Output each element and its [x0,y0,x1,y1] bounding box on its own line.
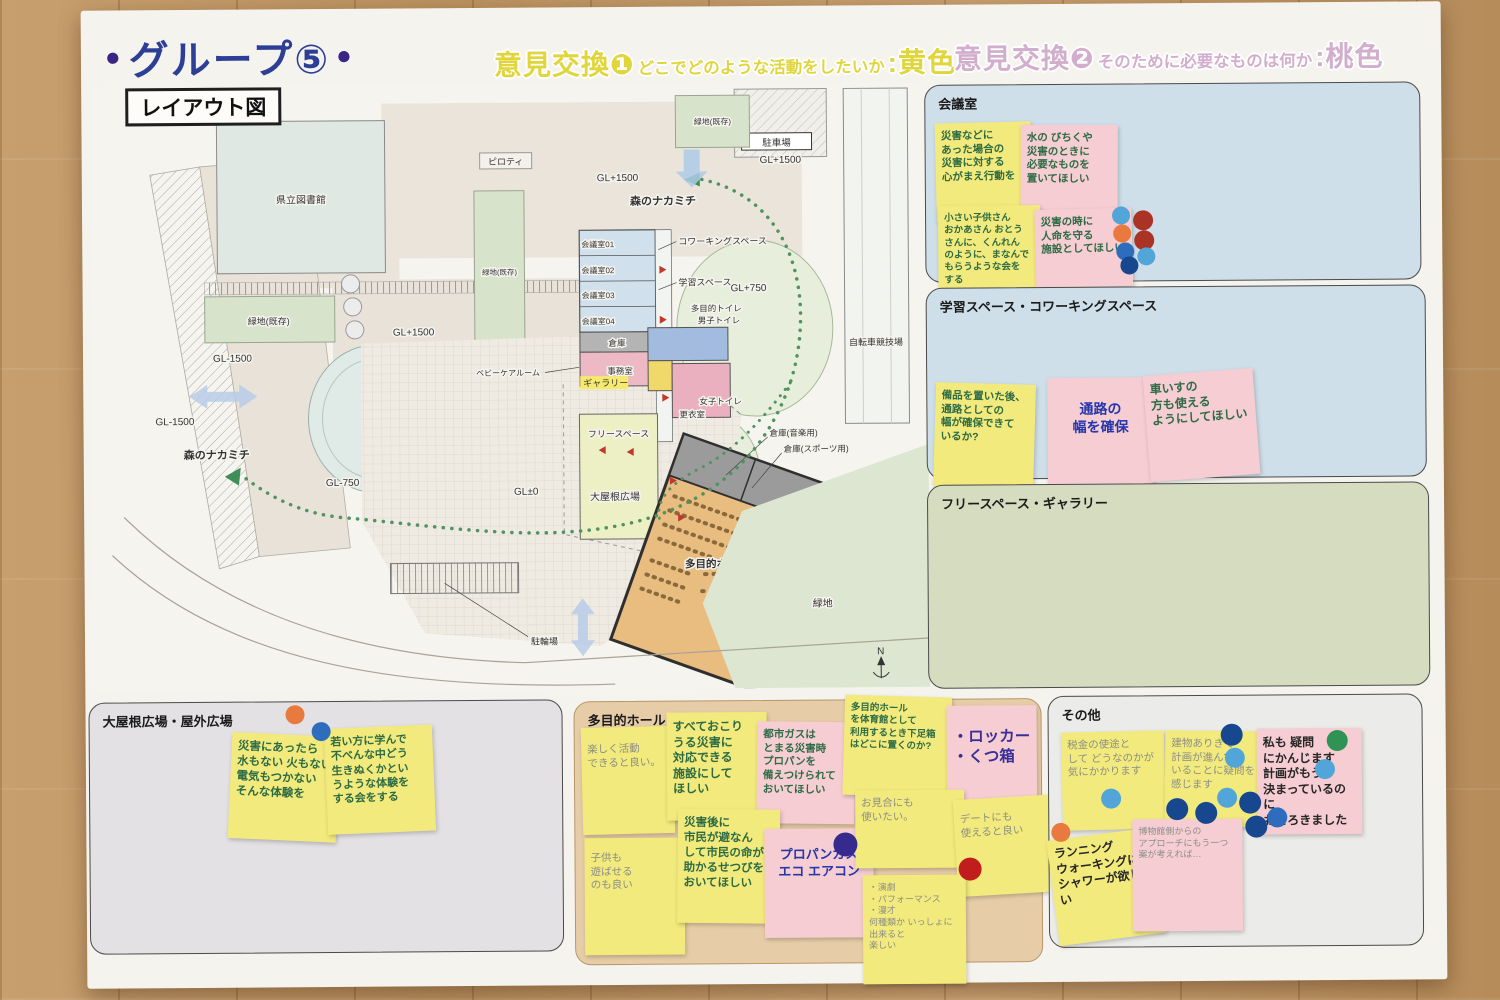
panel-kaigishitsu: 会議室 災害などに あった場合の 災害に対する 心がまえ行動を 水の びちくや … [924,81,1421,282]
room-divider [579,255,655,256]
note-tamokuteki-9: デートにも 使えると良い [953,795,1056,898]
gl-label: GL+1500 [393,327,435,338]
meeting1-label: 会議室01 [581,239,615,249]
gl-label: GL-1500 [213,354,252,365]
dot-sticker [1315,759,1335,779]
green-existing-label: 緑地(既存) [248,315,290,326]
panel-oyane-label: 大屋根広場・屋外広場 [102,711,232,731]
free-space-label: フリースペース [588,429,650,439]
gl-label: GL±0 [514,487,539,498]
dot-sticker [1113,224,1131,242]
note-sonota-0: 税金の使途と して どうなのかが 気にかかります [1061,730,1166,830]
dot-sticker [959,857,982,880]
dot-sticker [1245,815,1267,837]
multi-toilet-label: 多目的トイレ [691,303,742,313]
dot-sticker [1120,256,1138,274]
exchange-1-color: :黄色 [888,41,957,81]
forest-path-label: 森のナカミチ [184,448,250,462]
panel-gakushu-label: 学習スペース・コワーキングスペース [940,295,1158,316]
forest-path-label: 森のナカミチ [630,193,696,207]
storage-music-label: 倉庫(音楽用) [770,428,818,438]
yellow-room [648,361,672,391]
note-tamokuteki-5: 子供も 遊ばせる のも良い [584,838,685,956]
piloti-label: ピロティ [488,157,524,167]
note-gakushu-1: 通路の 幅を確保 [1047,377,1154,497]
note-gakushu-0: 備品を置いた後、 通路としての 幅が確保できて いるか? [933,382,1036,489]
green-existing-label: 緑地(既存) [694,116,732,126]
velodrome-label: 自転車競技場 [849,336,903,347]
office-label: 事務室 [607,366,633,376]
exchange-1-question: どこでどのような活動をしたいか [638,53,885,79]
panel-oyane: 大屋根広場・屋外広場 災害にあったら 水もない 火もない 電気もつかない そんな… [88,699,564,954]
green-label: 緑地 [813,597,833,610]
parking-label: 駐車場 [762,137,791,149]
exchange-2-question: そのために必要なものは何か [1098,47,1313,72]
plaza-label: 大屋根広場 [590,490,640,503]
meeting3-label: 会議室03 [582,290,616,300]
dot-sticker [1239,792,1261,814]
dot-sticker [1267,807,1287,827]
gallery-label: ギャラリー [583,378,628,388]
north-label: N [877,646,884,657]
exchange-2-heading: 意見交換❷ そのために必要なものは何か :桃色 [954,35,1384,78]
dot-sticker [1101,789,1121,809]
library-label: 県立図書館 [276,193,326,206]
dot-sticker [312,722,331,741]
gl-label: GL-1500 [155,417,194,428]
coworking-label: コワーキングスペース [678,235,767,247]
gl-label: GL+750 [731,283,767,294]
note-oyane-1: 若い方に学んで 不べんな中どう 生きぬくかとい うような体験を する会をする [324,724,436,834]
panel-free-gallery: フリースペース・ギャラリー [927,481,1430,688]
exchange-1-heading: 意見交換❶ どこでどのような活動をしたいか :黄色 [494,41,956,84]
baby-care-label: ベビーケアルーム [476,369,540,378]
photo-scene: ●グループ⑤● 意見交換❶ どこでどのような活動をしたいか :黄色 意見交換❷ … [0,0,1500,1000]
note-tamokuteki-3: 多目的ホール を体育館として 利用するとき下足箱 はどこに置くのか? [842,695,952,798]
dot-sticker [1195,802,1217,824]
women-toilet-label: 女子トイレ [699,396,742,406]
exchange-1-label: 意見交換❶ [494,43,635,84]
map-title: レイアウト図 [125,87,281,126]
panel-gakushu: 学習スペース・コワーキングスペース 備品を置いた後、 通路としての 幅が確保でき… [926,284,1427,479]
bicycle-parking-label: 駐輪場 [531,635,558,646]
study-label: 学習スペース [678,276,731,287]
velodrome-strip [843,88,909,423]
note-tamokuteki-8: お見合にも 使いたい。 [855,790,965,869]
note-tamokuteki-1: すべておこり うる災害に 対応できる 施設にして ほしい [667,712,768,821]
note-sonota-4: 博物館側からの アプローチにもう一つ 案が考えれば… [1132,819,1243,932]
panel-sonota-label: その他 [1061,705,1100,724]
dot-sticker [1137,247,1155,265]
dot-sticker [833,832,857,856]
dot-sticker [1327,730,1348,751]
men-toilet-label: 男子トイレ [698,315,741,325]
dot-sticker [1221,724,1243,746]
note-tamokuteki-10: ・演劇 ・パフォーマンス ・漫才 何種類か いっしょに 出来ると 楽しい [863,875,967,985]
walkway [205,280,625,295]
gl-label: GL+1500 [597,173,639,184]
toilet-block [648,327,728,361]
note-tamokuteki-0: 楽しく活動 できると良い。 [581,726,676,835]
meeting4-label: 会議室04 [582,316,616,326]
changing-label: 更衣室 [679,409,705,419]
dot-sticker [1166,798,1188,820]
dot-sticker [285,705,304,724]
dot-sticker [1217,788,1237,808]
page-title: ●グループ⑤● [99,27,360,87]
green-existing-label: 緑地(既存) [482,267,518,277]
exchange-2-label: 意見交換❷ [954,37,1095,78]
title-bullet-right: ● [336,40,354,70]
panel-kaigishitsu-label: 会議室 [938,94,977,113]
layout-map: 県立図書館 緑地(既存) 駐車場 自転車競技場 搬入動線 緑地(既存) 緑地(既… [91,82,930,693]
poster-sheet: ●グループ⑤● 意見交換❶ どこでどのような活動をしたいか :黄色 意見交換❷ … [81,1,1448,988]
room-divider [580,281,656,282]
tree-circle [344,298,362,316]
exchange-2-color: :桃色 [1315,35,1384,75]
tree-circle [341,275,359,293]
storage-sports-label: 倉庫(スポーツ用) [784,443,849,453]
title-bullet-left: ● [105,41,123,71]
tree-circle [346,321,364,339]
panel-free-gallery-label: フリースペース・ギャラリー [941,493,1108,513]
bike-rack [390,563,518,594]
dot-sticker [1225,748,1245,768]
meeting2-label: 会議室02 [581,265,615,275]
note-gakushu-2: 車いすの 方も使える ようにしてほしい [1143,368,1261,482]
room-divider [580,306,656,307]
note-kaigishitsu-2: 小さい子供さん おかあさん おとう さんに、くんれん のように、まなんで もらう… [938,205,1041,296]
gl-label: GL-750 [326,478,360,489]
dot-sticker [1112,206,1130,224]
gl-label: GL+1500 [760,155,802,166]
group-title-text: グループ⑤ [129,38,331,83]
dot-sticker [1051,823,1070,842]
dot-sticker [1133,210,1153,230]
panel-sonota: その他 税金の使途と して どうなのかが 気にかかります 建物ありきで 計画が進… [1047,693,1424,948]
note-oyane-0: 災害にあったら 水もない 火もない 電気もつかない そんな体験を [228,732,341,843]
storage-label: 倉庫 [608,338,626,348]
panel-tamokuteki: 多目的ホール 楽しく活動 できると良い。 すべておこり うる災害に 対応できる … [573,698,1043,965]
